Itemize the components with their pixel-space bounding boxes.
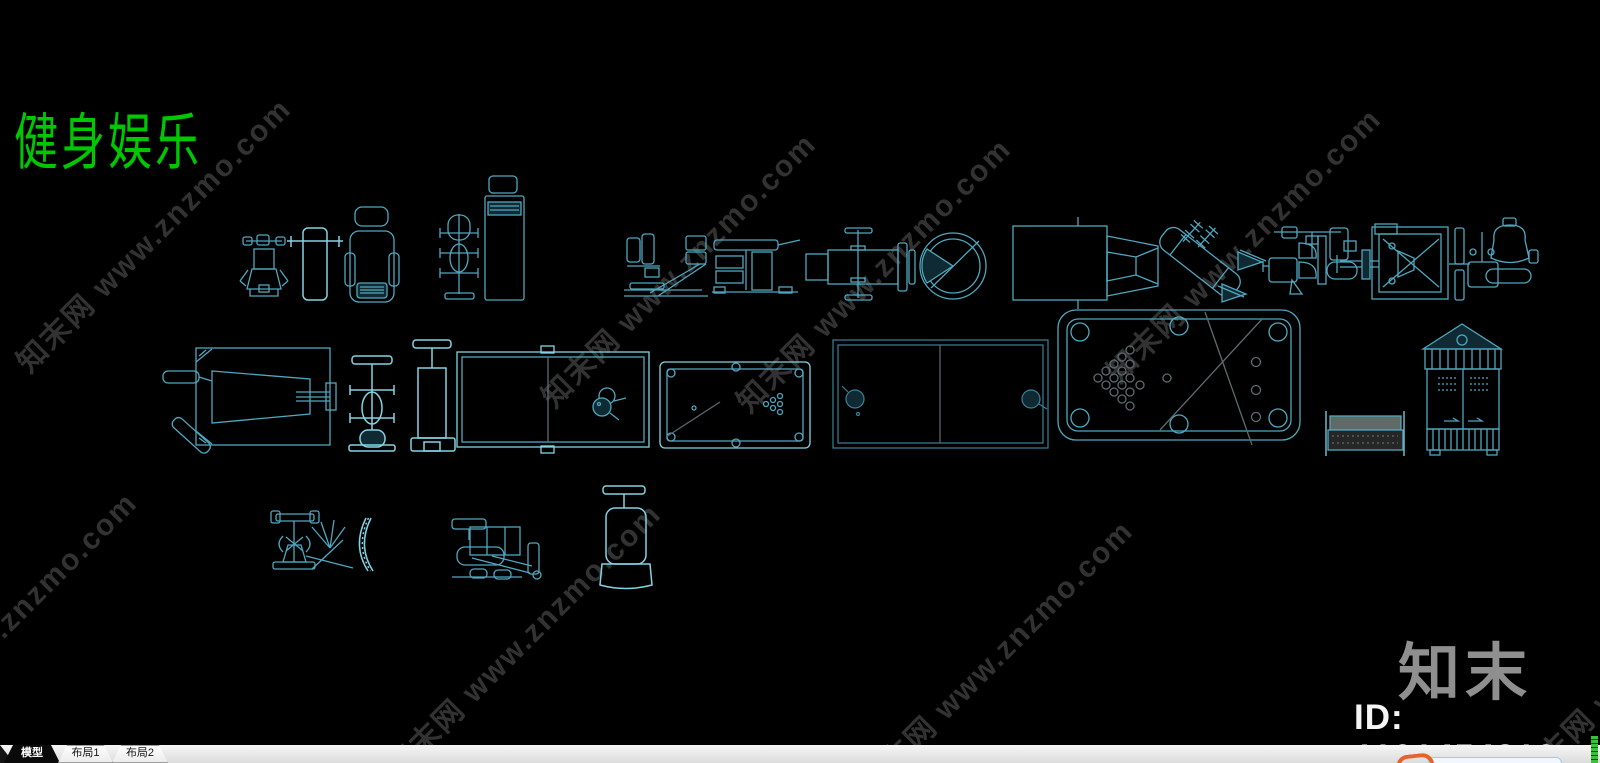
block-exercise-bike-side[interactable] bbox=[1449, 218, 1538, 300]
block-table-tennis-table[interactable] bbox=[457, 346, 649, 453]
block-standing-trainer-front[interactable] bbox=[349, 356, 395, 451]
tab-layout2[interactable]: 布局2 bbox=[112, 745, 168, 763]
block-exercise-machine-side[interactable] bbox=[452, 519, 541, 579]
block-sauna-cabinet[interactable] bbox=[1423, 324, 1501, 455]
block-table-tennis-table-2[interactable] bbox=[833, 340, 1048, 448]
block-rowing-trainer-side[interactable] bbox=[624, 234, 708, 296]
block-exercise-bike-top[interactable] bbox=[920, 233, 986, 299]
block-treadmill-side[interactable] bbox=[485, 176, 524, 300]
block-dumbbell-stand[interactable] bbox=[440, 214, 478, 299]
block-incline-bench-rotated[interactable] bbox=[1156, 214, 1266, 302]
app-window: 知末网 www.znzmo.com 知末网 www.znzmo.com 知末网 … bbox=[0, 0, 1600, 763]
block-cable-station-front[interactable] bbox=[271, 511, 319, 569]
block-stepper-front[interactable] bbox=[240, 235, 288, 296]
block-press-bench-side[interactable] bbox=[712, 240, 800, 293]
block-bench-press-top[interactable] bbox=[806, 228, 915, 300]
block-billiard-table-small[interactable] bbox=[660, 362, 810, 448]
block-arc-blade[interactable] bbox=[359, 518, 373, 571]
drawing-blocks bbox=[0, 0, 1600, 745]
tab-model[interactable]: 模型 bbox=[4, 745, 60, 763]
block-massage-chair-top[interactable] bbox=[345, 207, 399, 302]
block-massage-mat[interactable] bbox=[1326, 411, 1404, 456]
block-floor-pump[interactable] bbox=[600, 486, 652, 589]
partial-button-outline bbox=[1428, 757, 1562, 763]
block-squat-rack-top[interactable] bbox=[1337, 224, 1448, 299]
block-billiard-table-large[interactable] bbox=[1058, 310, 1300, 445]
block-treadmill-top[interactable] bbox=[1013, 217, 1158, 309]
layout-tabbar: 模型 布局1 布局2 bbox=[0, 745, 1600, 763]
green-segment-indicator-icon bbox=[1591, 736, 1598, 763]
tab-layout1[interactable]: 布局1 bbox=[58, 745, 113, 763]
block-weight-bench-front[interactable] bbox=[287, 228, 343, 300]
model-canvas[interactable]: 知末网 www.znzmo.com 知末网 www.znzmo.com 知末网 … bbox=[0, 0, 1600, 745]
block-air-pump[interactable] bbox=[411, 340, 455, 451]
block-rowing-machine-top[interactable] bbox=[163, 348, 336, 455]
